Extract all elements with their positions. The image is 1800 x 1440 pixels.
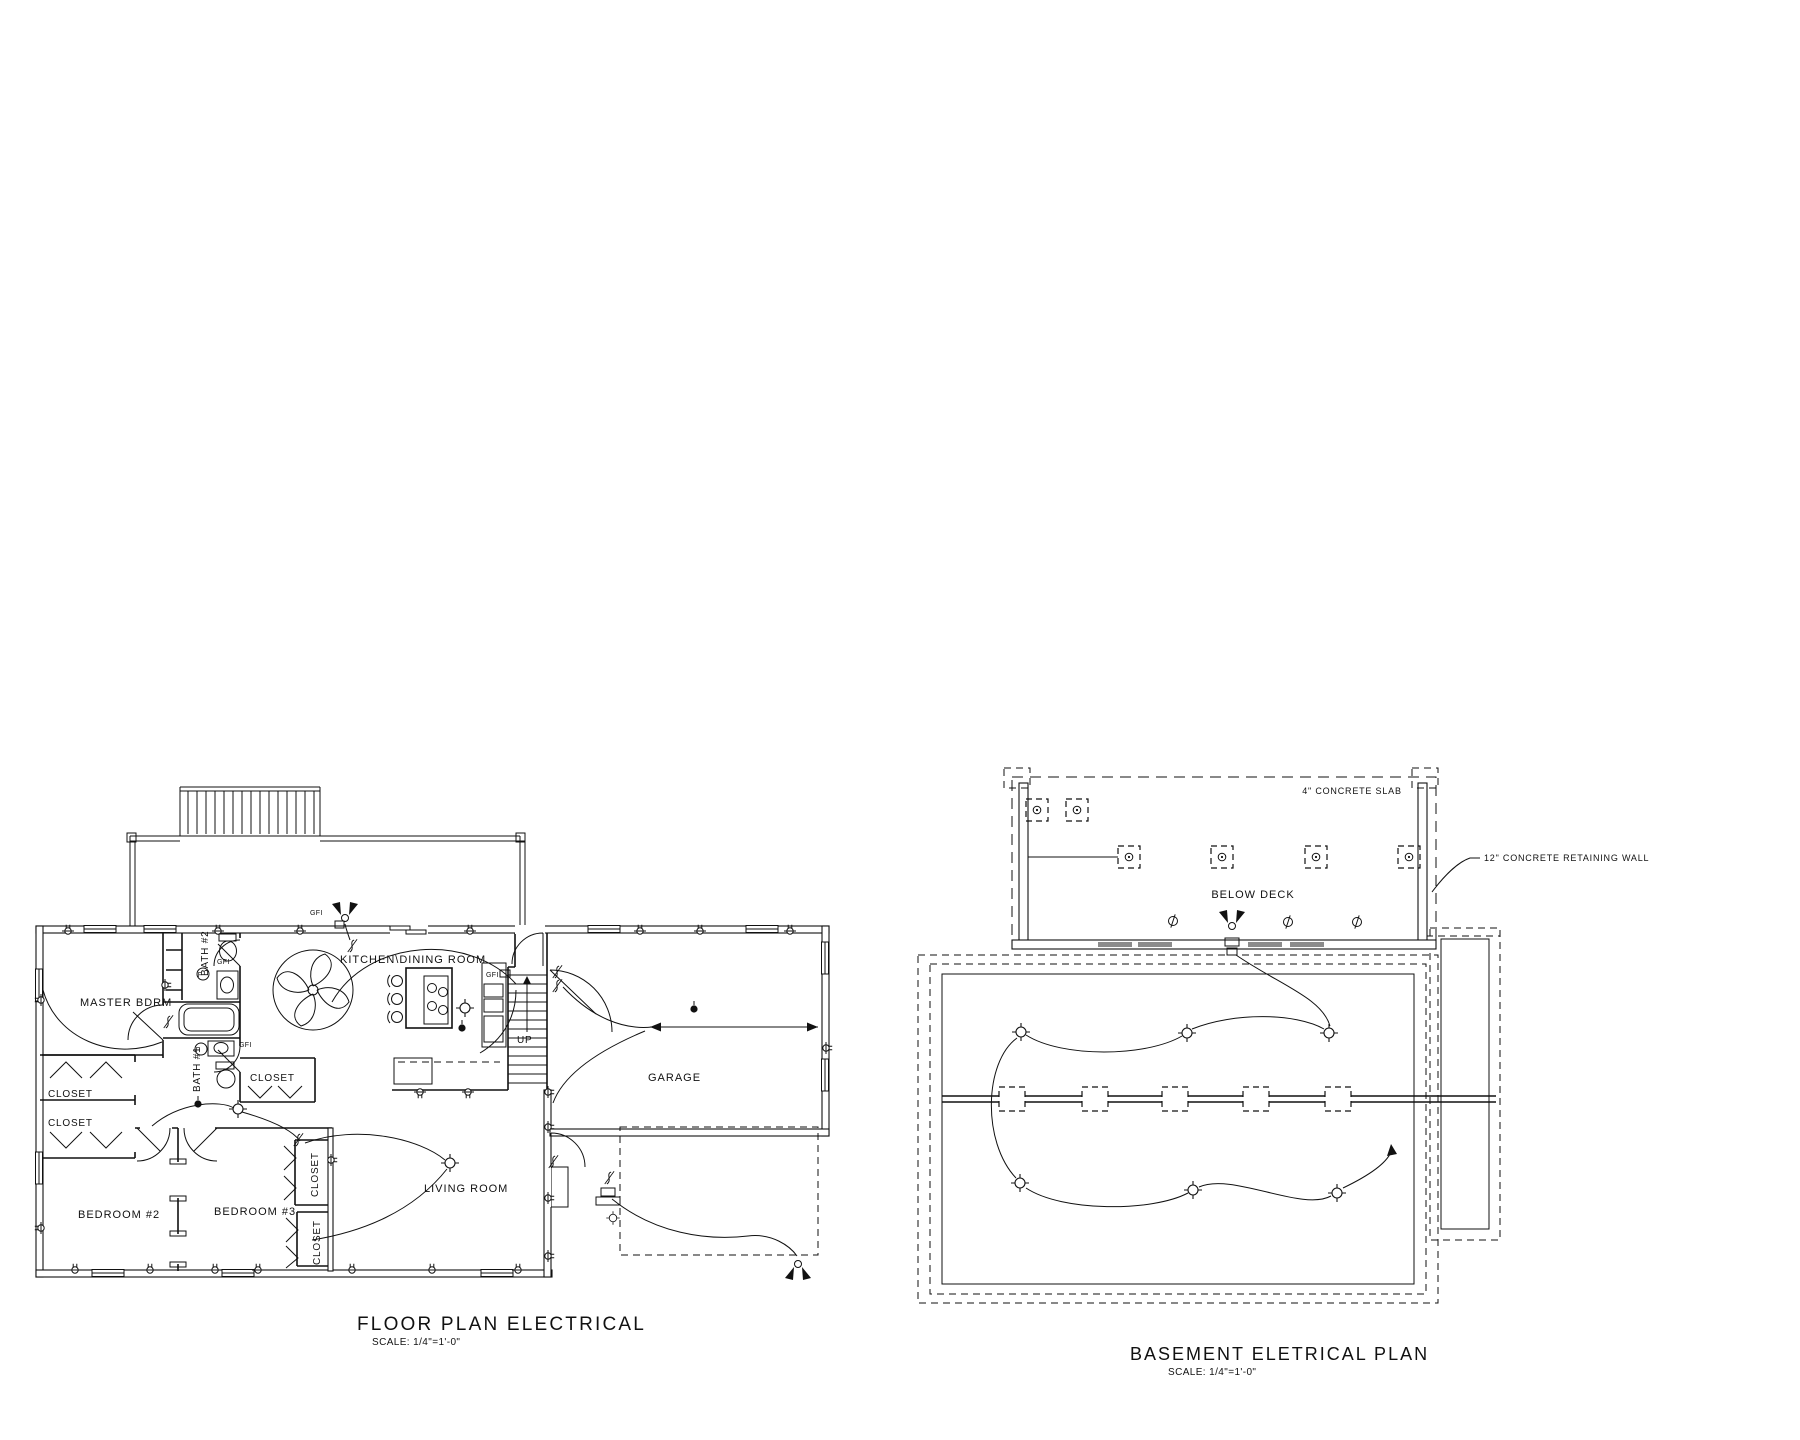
footing-icon: [1066, 799, 1088, 821]
bedroom3-door: [184, 1128, 217, 1161]
label-closet: CLOSET: [48, 1089, 93, 1100]
room-labels: MASTER BDRM KITCHEN\DINING ROOM LIVING R…: [48, 910, 701, 1265]
flood-light-icon: [785, 1261, 811, 1281]
smoke-detector-icon: [690, 1001, 697, 1013]
windows: [36, 925, 829, 1277]
sink-icon: [214, 1043, 228, 1054]
ceiling-light-icon: [1169, 914, 1178, 927]
label-fan: F: [198, 972, 203, 979]
floor-plan: MASTER BDRM KITCHEN\DINING ROOM LIVING R…: [35, 787, 832, 1348]
beam-and-posts: [942, 1087, 1496, 1111]
post-icon: [1325, 1087, 1351, 1111]
cooktop: [424, 976, 448, 1024]
wire-arrow-icon: [1387, 1144, 1397, 1156]
window-icon: [144, 926, 176, 933]
window-icon: [84, 926, 116, 933]
sink-icon: [221, 977, 234, 993]
switch-icon: [553, 965, 562, 978]
deck-stairs: [188, 791, 314, 834]
switch-icon: [164, 1015, 173, 1028]
label-garage: GARAGE: [648, 1072, 701, 1084]
ceiling-light-icon: [1284, 915, 1293, 928]
opener-unit: [596, 1197, 620, 1205]
label-bedroom-2: BEDROOM #2: [78, 1209, 160, 1221]
garage-entry-door: [550, 970, 612, 1032]
living-garage-door: [551, 1133, 585, 1207]
post-icon: [999, 1087, 1025, 1111]
label-closet: CLOSET: [250, 1073, 295, 1084]
toilet-tank: [219, 934, 236, 941]
label-up: UP: [517, 1035, 533, 1046]
footing-icon: [1305, 846, 1327, 868]
footing-icon: [1398, 846, 1420, 868]
label-closet: CLOSET: [48, 1118, 93, 1129]
ceiling-light-icon: [1184, 1181, 1202, 1199]
ceiling-light-icon: [1320, 1024, 1338, 1042]
deck: [127, 787, 525, 927]
floor-plan-scale: SCALE: 1/4"=1'-0": [372, 1337, 460, 1348]
post-icon: [1243, 1087, 1269, 1111]
label-concrete-slab: 4" CONCRETE SLAB: [1302, 786, 1402, 796]
ceiling-light-icon: [606, 1211, 620, 1225]
basement-foundation: [918, 928, 1500, 1303]
label-gfi: GFI: [239, 1042, 252, 1049]
basement-title: BASEMENT ELETRICAL PLAN: [1130, 1344, 1429, 1364]
window-icon: [92, 1270, 124, 1277]
kitchen-sink-icon: [484, 984, 503, 997]
window-icon: [222, 1270, 254, 1277]
kitchen-sink-icon: [484, 999, 503, 1012]
basement-wiring: [991, 955, 1397, 1207]
basement-titleblock: BASEMENT ELETRICAL PLAN SCALE: 1/4"=1'-0…: [1130, 1344, 1429, 1378]
electrical-plans-drawing: MASTER BDRM KITCHEN\DINING ROOM LIVING R…: [0, 0, 1800, 1440]
toilet-icon: [217, 1070, 235, 1088]
floor-plan-title: FLOOR PLAN ELECTRICAL: [357, 1314, 646, 1335]
footing-icon: [1118, 846, 1140, 868]
label-retaining-wall: 12" CONCRETE RETAINING WALL: [1484, 853, 1649, 863]
label-closet: CLOSET: [312, 1220, 323, 1265]
basement-plan: 4" CONCRETE SLAB BELOW DECK 12" CONCRETE…: [918, 768, 1649, 1378]
below-deck-area: [1004, 768, 1438, 955]
kitchen-island: [406, 968, 452, 1028]
chair-icon: [388, 1011, 403, 1023]
label-below-deck: BELOW DECK: [1211, 889, 1294, 901]
ceiling-light-icon: [1328, 1184, 1346, 1202]
label-gfi: GFI: [217, 959, 230, 966]
master-door: [128, 1005, 163, 1040]
footing-icon: [1026, 799, 1048, 821]
exterior-walls: [36, 926, 829, 1277]
garage-door-dashed: [620, 1127, 818, 1255]
window-icon: [746, 926, 778, 933]
switch-icon: [605, 1171, 614, 1184]
label-fan: F: [196, 1047, 201, 1054]
window-icon: [822, 942, 829, 974]
label-gfi: GFI: [310, 910, 323, 917]
label-living-room: LIVING ROOM: [424, 1183, 508, 1195]
ceiling-light-icon: [1178, 1024, 1196, 1042]
garage-equipment: [596, 1023, 818, 1281]
flood-light-icon: [1219, 910, 1245, 930]
stair-direction-arrow-icon: [523, 976, 531, 984]
toilet-icon: [220, 941, 237, 961]
window-icon: [36, 1152, 43, 1184]
label-gfi: GFI: [486, 972, 499, 979]
interior-stairs: [508, 975, 547, 1083]
switch-icon: [348, 939, 357, 952]
ceiling-light-icon: [1012, 1023, 1030, 1041]
bedroom2-door: [137, 1128, 170, 1161]
label-master-bdrm: MASTER BDRM: [80, 997, 172, 1009]
switch-icon: [553, 979, 562, 992]
floor-plan-titleblock: FLOOR PLAN ELECTRICAL SCALE: 1/4"=1'-0": [357, 1314, 646, 1348]
ceiling-light-icon: [456, 999, 474, 1017]
flood-light-icon: [332, 902, 358, 922]
bath1-door: [214, 1046, 240, 1072]
post-icon: [1162, 1087, 1188, 1111]
ceiling-light-icon: [441, 1154, 459, 1172]
basement-annotations: 4" CONCRETE SLAB BELOW DECK 12" CONCRETE…: [1211, 786, 1649, 901]
chair-icon: [388, 993, 403, 1005]
label-bath-2: BATH #2: [200, 931, 211, 976]
footing-icon: [1211, 846, 1233, 868]
ceiling-light-icon: [1011, 1174, 1029, 1192]
chair-icon: [388, 975, 403, 987]
opener-arrow-icon: [807, 1023, 818, 1032]
post-icon: [1082, 1087, 1108, 1111]
basement-scale: SCALE: 1/4"=1'-0": [1168, 1367, 1256, 1378]
label-closet: CLOSET: [310, 1152, 321, 1197]
window-icon: [822, 1059, 829, 1091]
window-icon: [481, 1270, 513, 1277]
drawing-sheet: MASTER BDRM KITCHEN\DINING ROOM LIVING R…: [0, 0, 1800, 1440]
entry-door: [512, 933, 543, 966]
window-icon: [588, 926, 620, 933]
label-bedroom-3: BEDROOM #3: [214, 1206, 296, 1218]
label-kitchen-dining: KITCHEN\DINING ROOM: [340, 954, 486, 966]
smoke-detector-icon: [458, 1020, 465, 1032]
ceiling-light-icon: [1353, 915, 1362, 928]
dishwasher: [484, 1016, 503, 1042]
